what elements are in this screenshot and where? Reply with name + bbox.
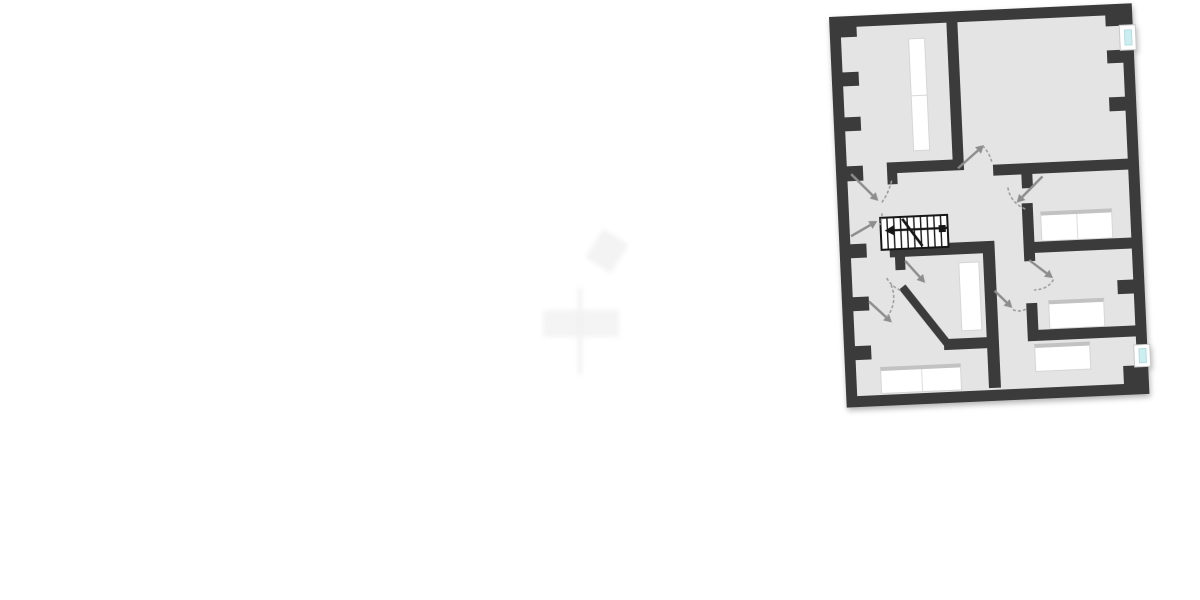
door-swing-center-room-shaft — [905, 260, 920, 277]
watermark-stem — [578, 288, 582, 374]
door-arc-0 — [880, 181, 893, 204]
door-swing-center-room — [905, 260, 925, 284]
watermark-blob — [585, 229, 628, 274]
staircase — [880, 215, 948, 250]
door-swing-right-upper-room-shaft — [1021, 176, 1043, 197]
door-arc-4 — [983, 146, 992, 162]
door-swing-hall-upper-left — [851, 173, 878, 202]
wall-bottomleft-room-diagonal — [902, 285, 947, 345]
door-swing-corridor-shaft — [995, 290, 1007, 303]
door-swing-right-middle-room — [1029, 259, 1053, 279]
door-swing-stairs-approach — [850, 221, 878, 236]
door-arc-3 — [885, 285, 894, 317]
door-swing-top-right-room — [957, 145, 985, 168]
door-swing-right-upper-room — [1015, 176, 1043, 202]
door-swing-bottom-left-room — [869, 300, 892, 323]
door-arc-7 — [1013, 308, 1027, 311]
door-swing-corridor — [995, 290, 1013, 309]
page: { "canvas": {"width": 1200, "height": 60… — [0, 0, 1200, 600]
plan-symbols-layer — [829, 3, 1149, 407]
door-arc-2 — [887, 278, 903, 292]
door-swing-bottom-left-room-shaft — [869, 301, 886, 318]
door-swing-hall-upper-left-shaft — [851, 173, 873, 196]
door-swing-top-right-room-shaft — [957, 150, 979, 168]
floor-plan[interactable] — [829, 3, 1149, 407]
door-arc-6 — [1034, 280, 1053, 290]
stairs-arrow-tail-block — [939, 225, 946, 232]
door-swing-stairs-approach-shaft — [850, 225, 870, 236]
door-swing-right-middle-room-shaft — [1029, 259, 1046, 274]
